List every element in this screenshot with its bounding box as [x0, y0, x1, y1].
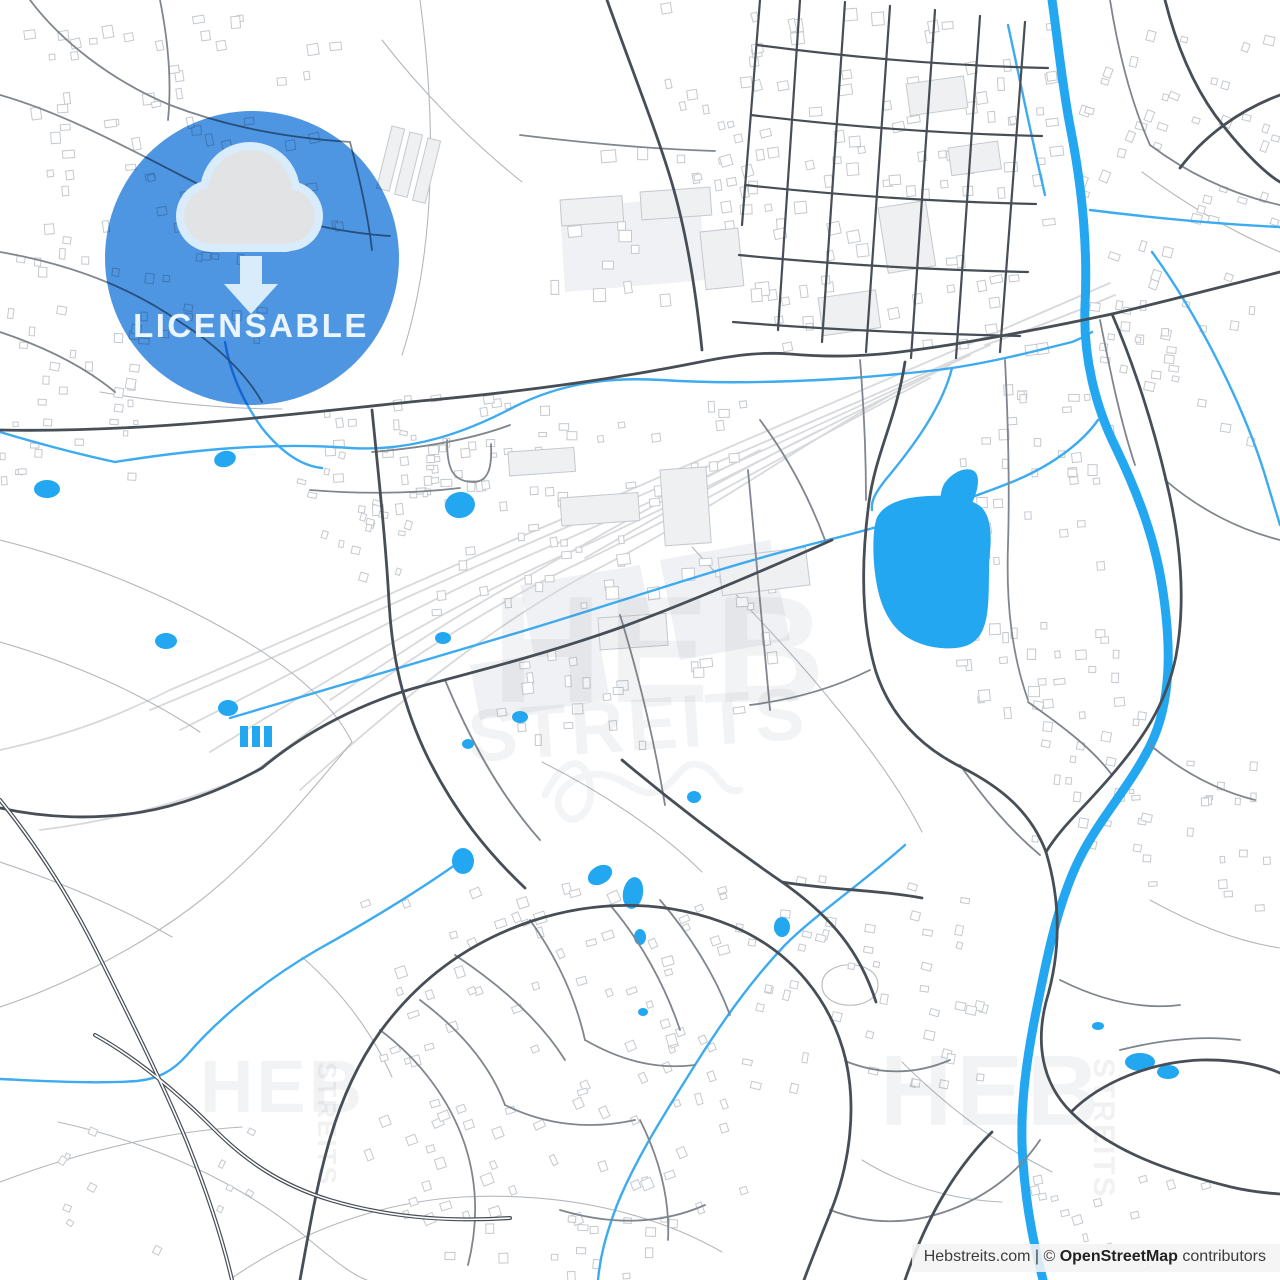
rural-road-casing	[0, 800, 510, 1280]
city-map: HEBSTREITSHEBSTREITSHEBSTREITS	[0, 0, 1280, 1280]
licensable-badge[interactable]: LICENSABLE	[105, 111, 399, 405]
attribution-hebstreits-link[interactable]: Hebstreits.com	[924, 1248, 1031, 1265]
attribution-osm-link[interactable]: OpenStreetMap	[1060, 1248, 1178, 1265]
watermark-script	[545, 764, 740, 819]
lakes	[873, 469, 990, 648]
pools	[240, 726, 272, 747]
watermark-texts: HEBSTREITSHEBSTREITSHEBSTREITS	[200, 565, 1120, 1199]
badge-label: LICENSABLE	[133, 307, 369, 344]
svg-text:STREITS: STREITS	[312, 1062, 342, 1186]
svg-text:STREITS: STREITS	[1087, 1058, 1120, 1199]
rural-road-fill	[0, 800, 510, 1280]
map-preview-stage: HEBSTREITSHEBSTREITSHEBSTREITS	[0, 0, 1280, 1280]
svg-text:HEB: HEB	[880, 1035, 1103, 1147]
attribution-separator: | ©	[1030, 1248, 1059, 1265]
attribution-contributors: contributors	[1178, 1248, 1266, 1265]
attribution-bar: Hebstreits.com | © OpenStreetMap contrib…	[912, 1244, 1280, 1272]
